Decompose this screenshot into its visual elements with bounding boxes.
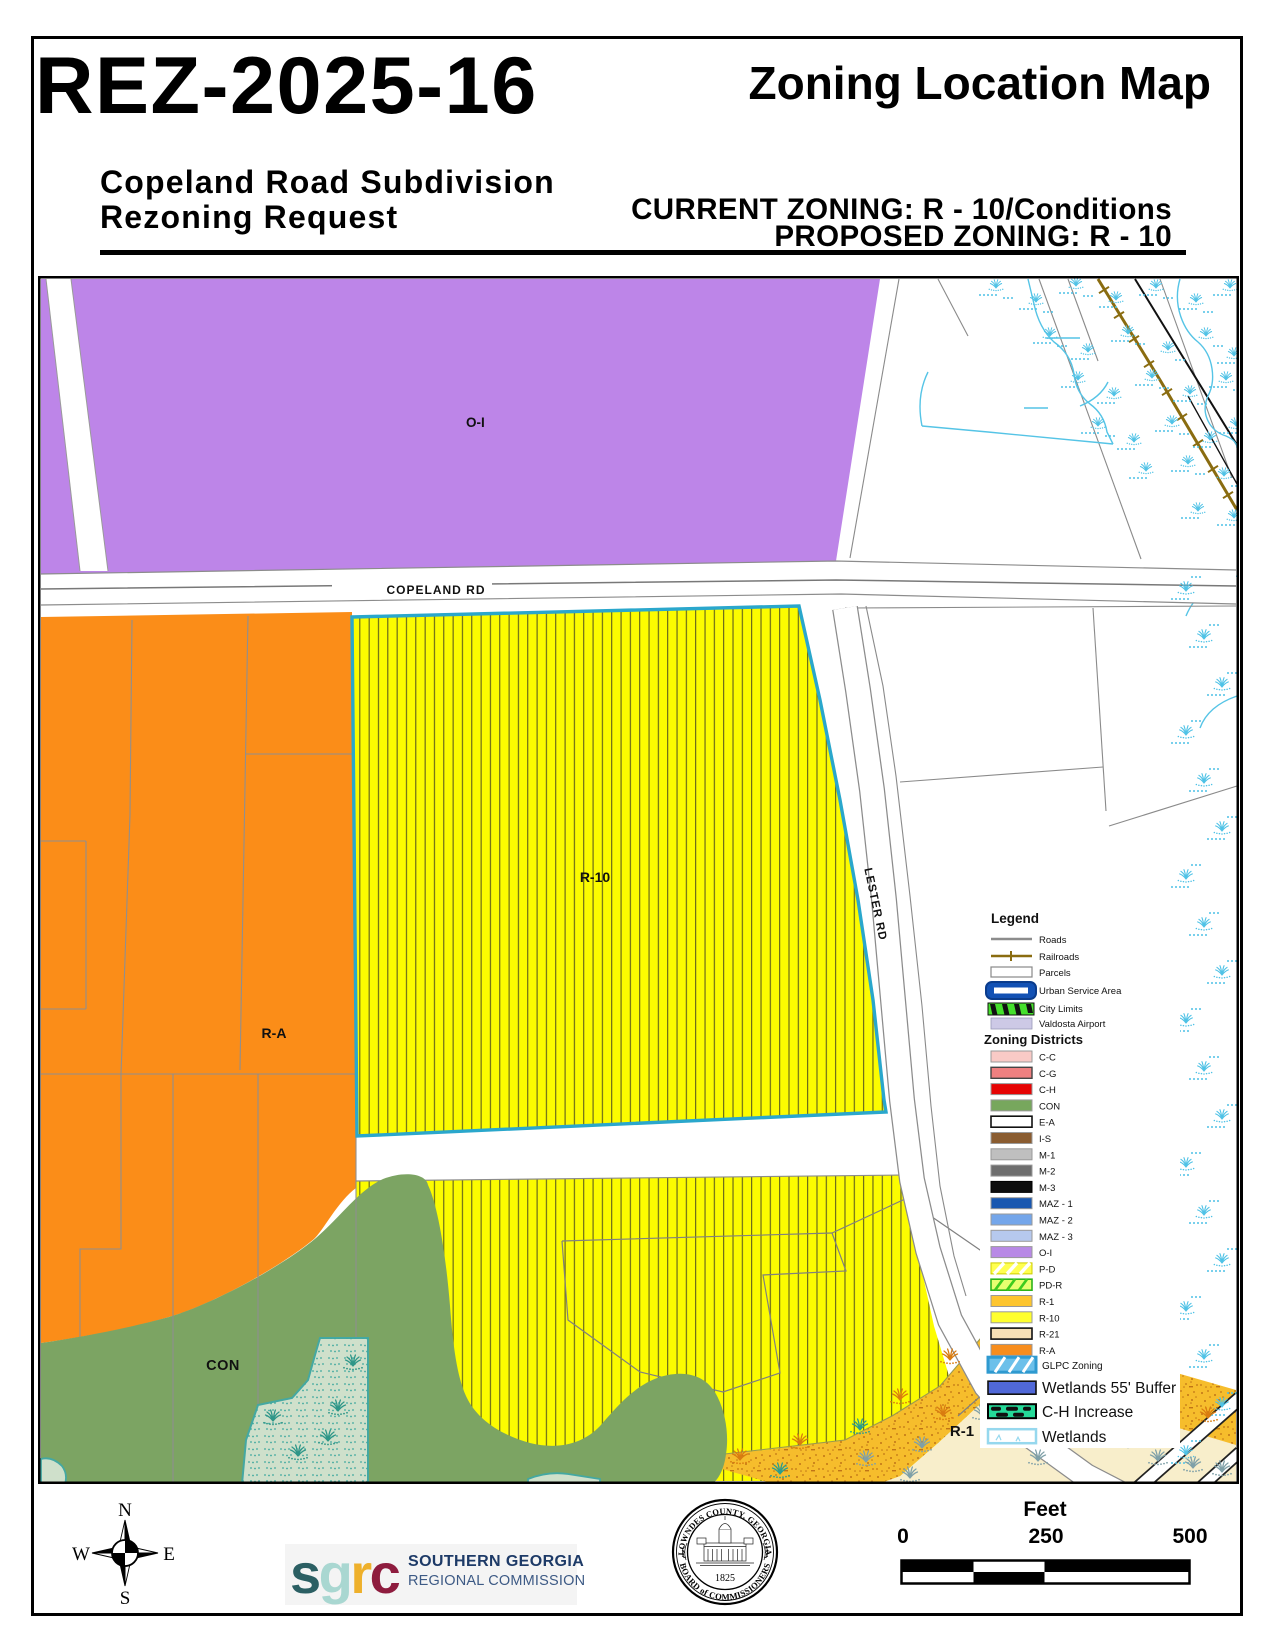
svg-text:R-10: R-10 [580,869,611,885]
svg-text:E: E [163,1544,175,1565]
svg-text:M-2: M-2 [1039,1167,1055,1178]
svg-text:GLPC Zoning: GLPC Zoning [1042,1361,1103,1372]
svg-text:C-H: C-H [1039,1085,1056,1096]
svg-text:MAZ - 2: MAZ - 2 [1039,1216,1073,1227]
svg-text:CON: CON [1039,1101,1060,1112]
svg-text:Parcels: Parcels [1039,968,1071,979]
svg-text:SOUTHERN GEORGIA: SOUTHERN GEORGIA [408,1553,584,1570]
svg-text:C-H Increase: C-H Increase [1042,1404,1133,1421]
svg-text:Roads: Roads [1039,935,1067,946]
svg-text:P-D: P-D [1039,1264,1056,1275]
svg-text:S: S [120,1588,131,1609]
svg-text:R-A: R-A [1039,1346,1056,1357]
svg-text:R-1: R-1 [950,1423,974,1440]
svg-text:City Limits: City Limits [1039,1004,1083,1015]
svg-text:sgrc: sgrc [290,1542,400,1605]
svg-text:Legend: Legend [991,911,1039,926]
svg-text:REGIONAL COMMISSION: REGIONAL COMMISSION [408,1573,585,1589]
svg-text:M-1: M-1 [1039,1150,1055,1161]
svg-text:R-21: R-21 [1039,1330,1060,1341]
svg-text:PD-R: PD-R [1039,1281,1062,1292]
svg-text:MAZ - 3: MAZ - 3 [1039,1232,1073,1243]
svg-text:Valdosta Airport: Valdosta Airport [1039,1019,1106,1030]
svg-text:E-A: E-A [1039,1118,1056,1129]
svg-text:1825: 1825 [715,1573,735,1584]
svg-text:R-1: R-1 [1039,1297,1054,1308]
svg-text:Zoning Districts: Zoning Districts [984,1032,1083,1047]
svg-text:Wetlands: Wetlands [1042,1429,1107,1446]
svg-text:Railroads: Railroads [1039,952,1079,963]
svg-text:CON: CON [206,1358,240,1374]
svg-text:COPELAND RD: COPELAND RD [386,583,485,597]
svg-text:C-C: C-C [1039,1053,1056,1064]
svg-text:R-10: R-10 [1039,1313,1060,1324]
svg-text:M-3: M-3 [1039,1183,1055,1194]
svg-text:Urban Service Area: Urban Service Area [1039,986,1122,997]
svg-text:MAZ - 1: MAZ - 1 [1039,1199,1073,1210]
svg-text:W: W [72,1544,90,1565]
svg-text:O-I: O-I [1039,1248,1052,1259]
svg-text:I-S: I-S [1039,1134,1051,1145]
svg-text:O-I: O-I [466,415,485,430]
svg-text:Wetlands 55' Buffer: Wetlands 55' Buffer [1042,1380,1176,1397]
svg-text:C-G: C-G [1039,1069,1056,1080]
svg-text:N: N [118,1500,132,1521]
svg-text:R-A: R-A [262,1025,287,1041]
